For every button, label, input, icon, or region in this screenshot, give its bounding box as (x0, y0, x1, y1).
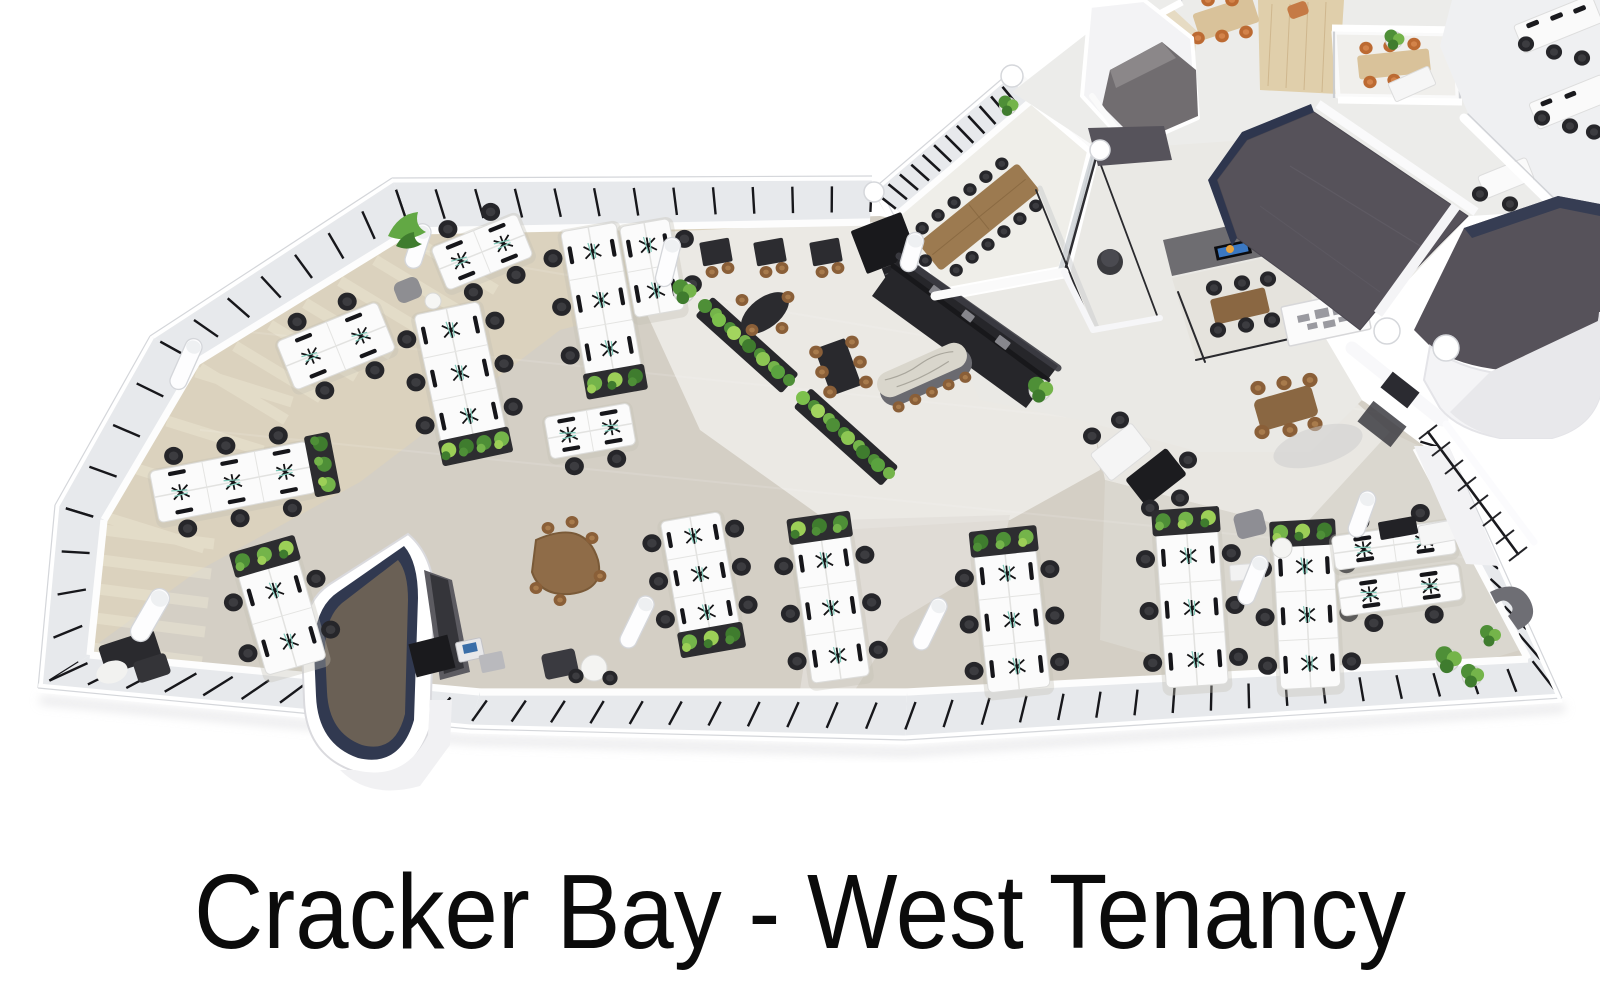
svg-text:Cracker Bay - West Tenancy: Cracker Bay - West Tenancy (194, 853, 1406, 971)
